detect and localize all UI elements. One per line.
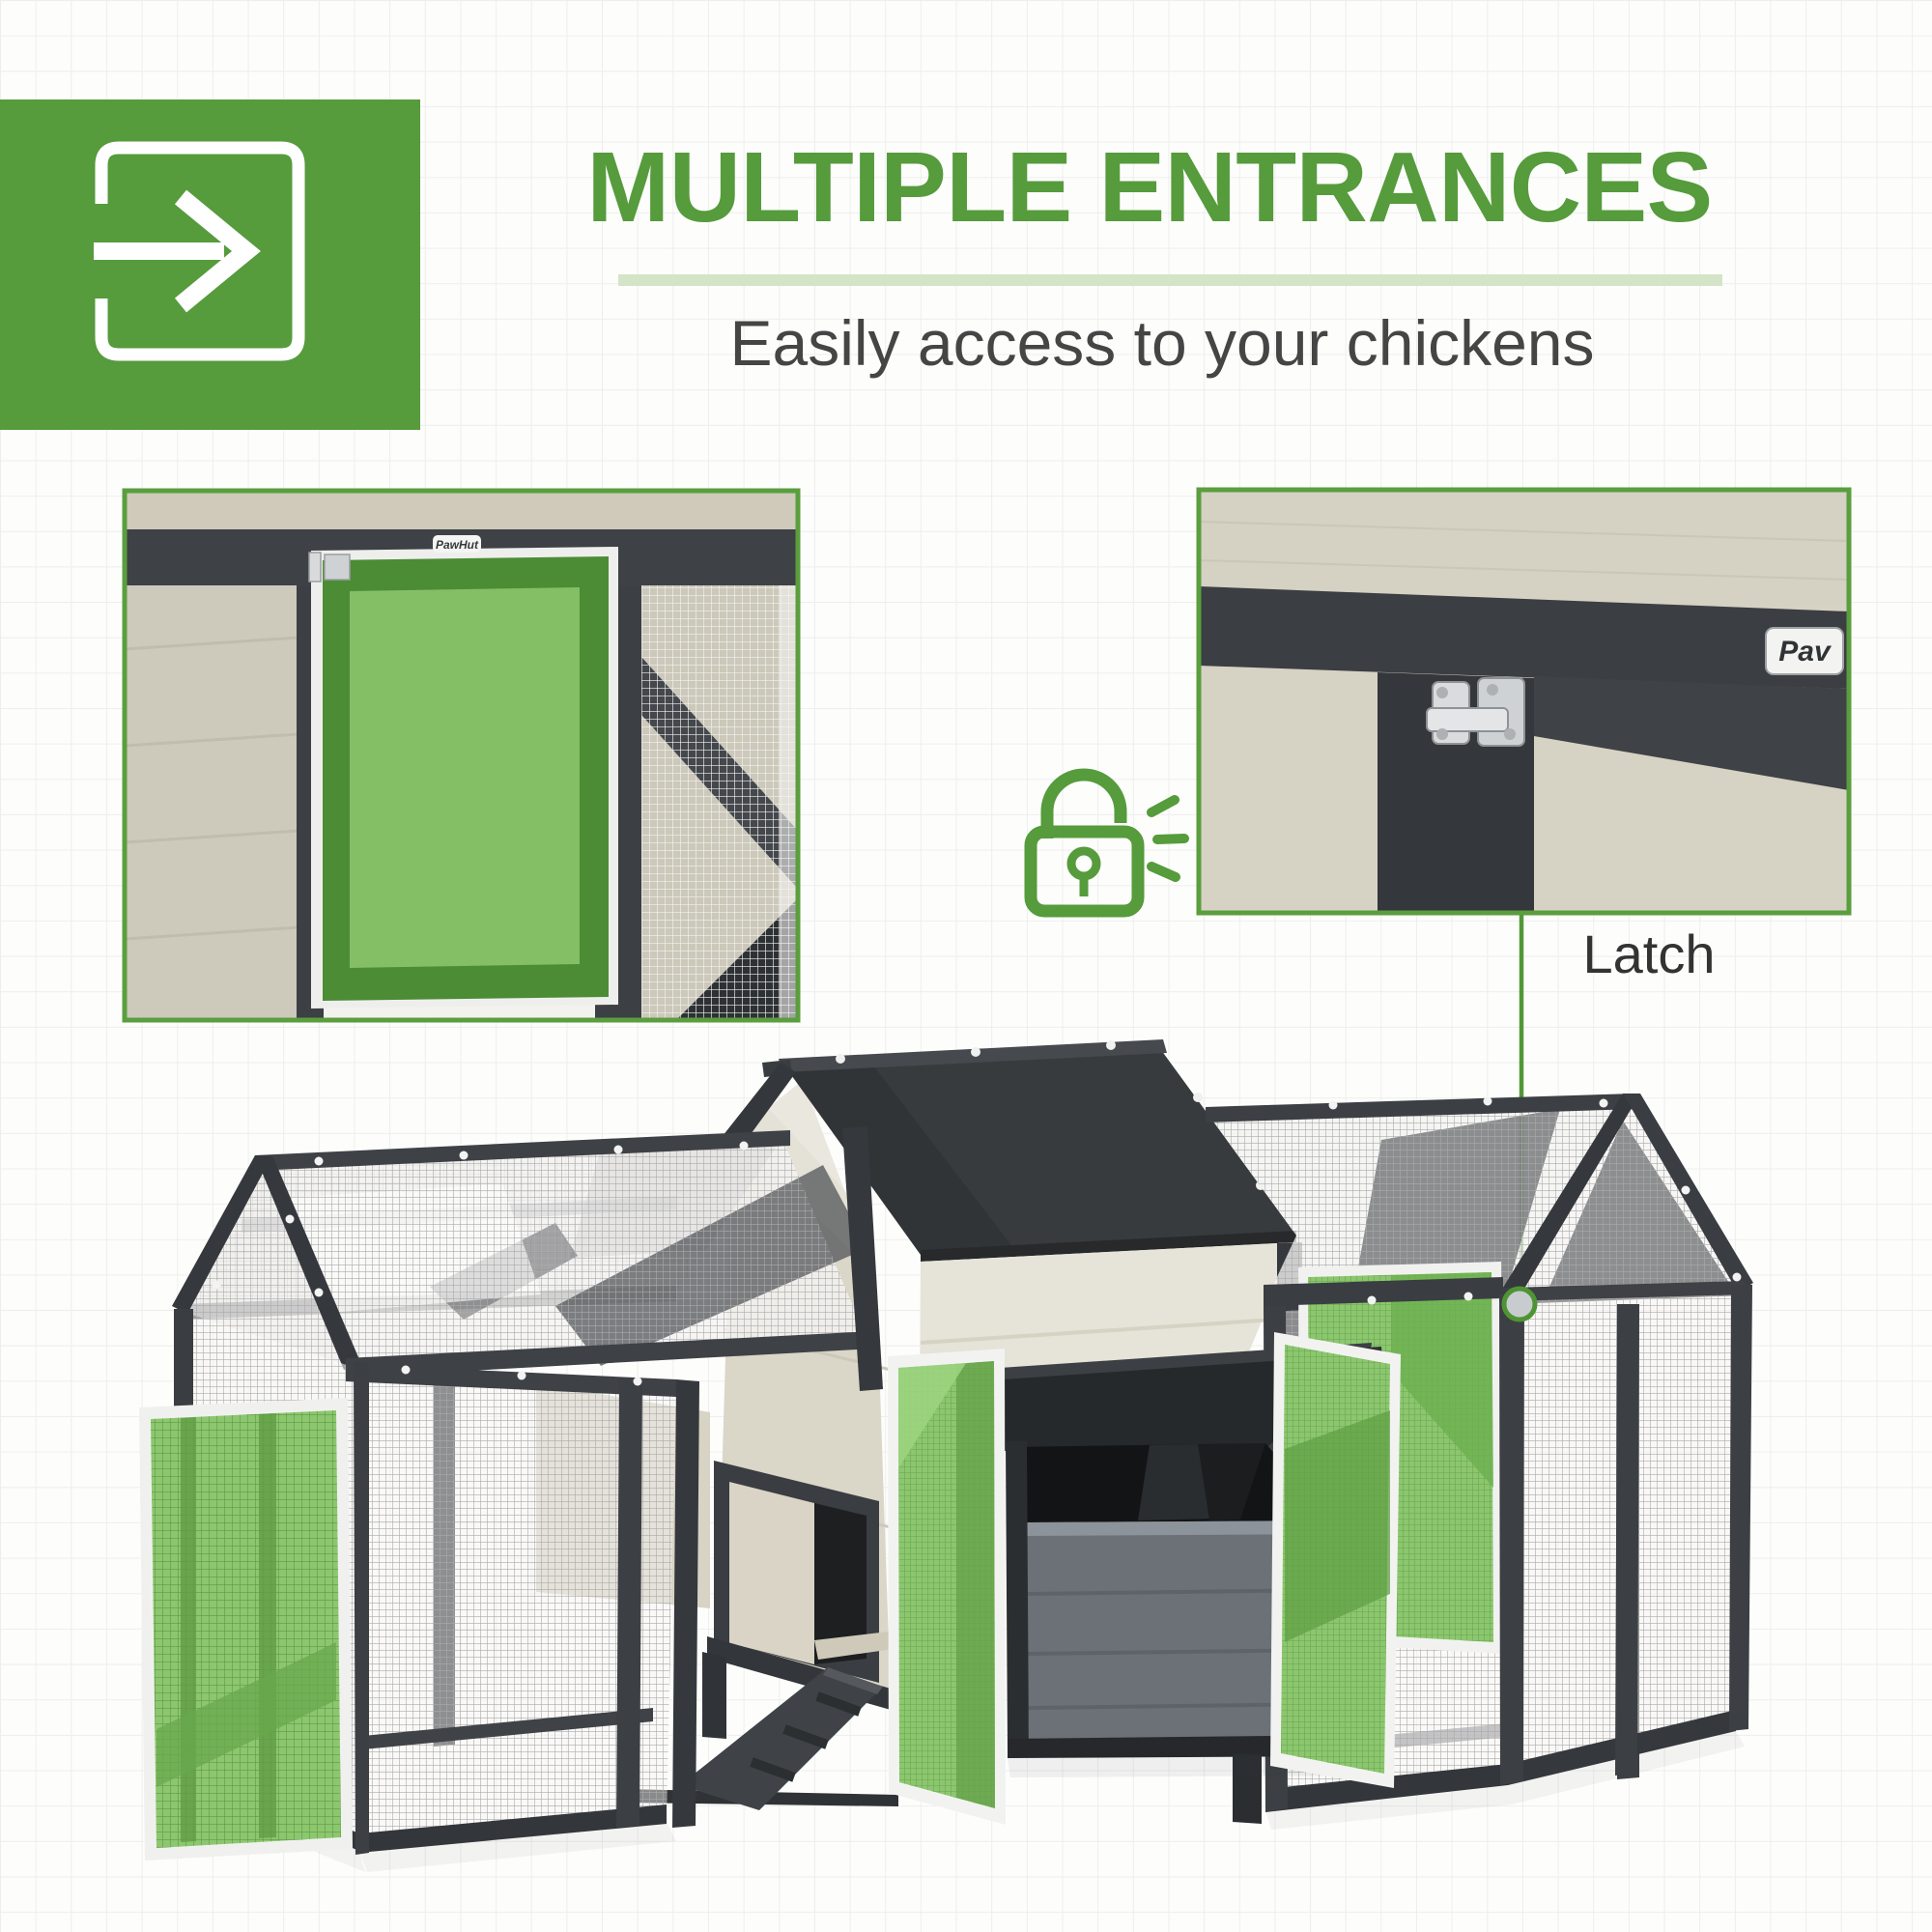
svg-text:Pav: Pav xyxy=(1778,636,1833,668)
svg-text:PawHut: PawHut xyxy=(436,538,479,552)
svg-text:MULTIPLE ENTRANCES: MULTIPLE ENTRANCES xyxy=(586,131,1712,242)
svg-text:Easily access to your chickens: Easily access to your chickens xyxy=(729,307,1594,379)
svg-text:Latch: Latch xyxy=(1583,923,1716,984)
